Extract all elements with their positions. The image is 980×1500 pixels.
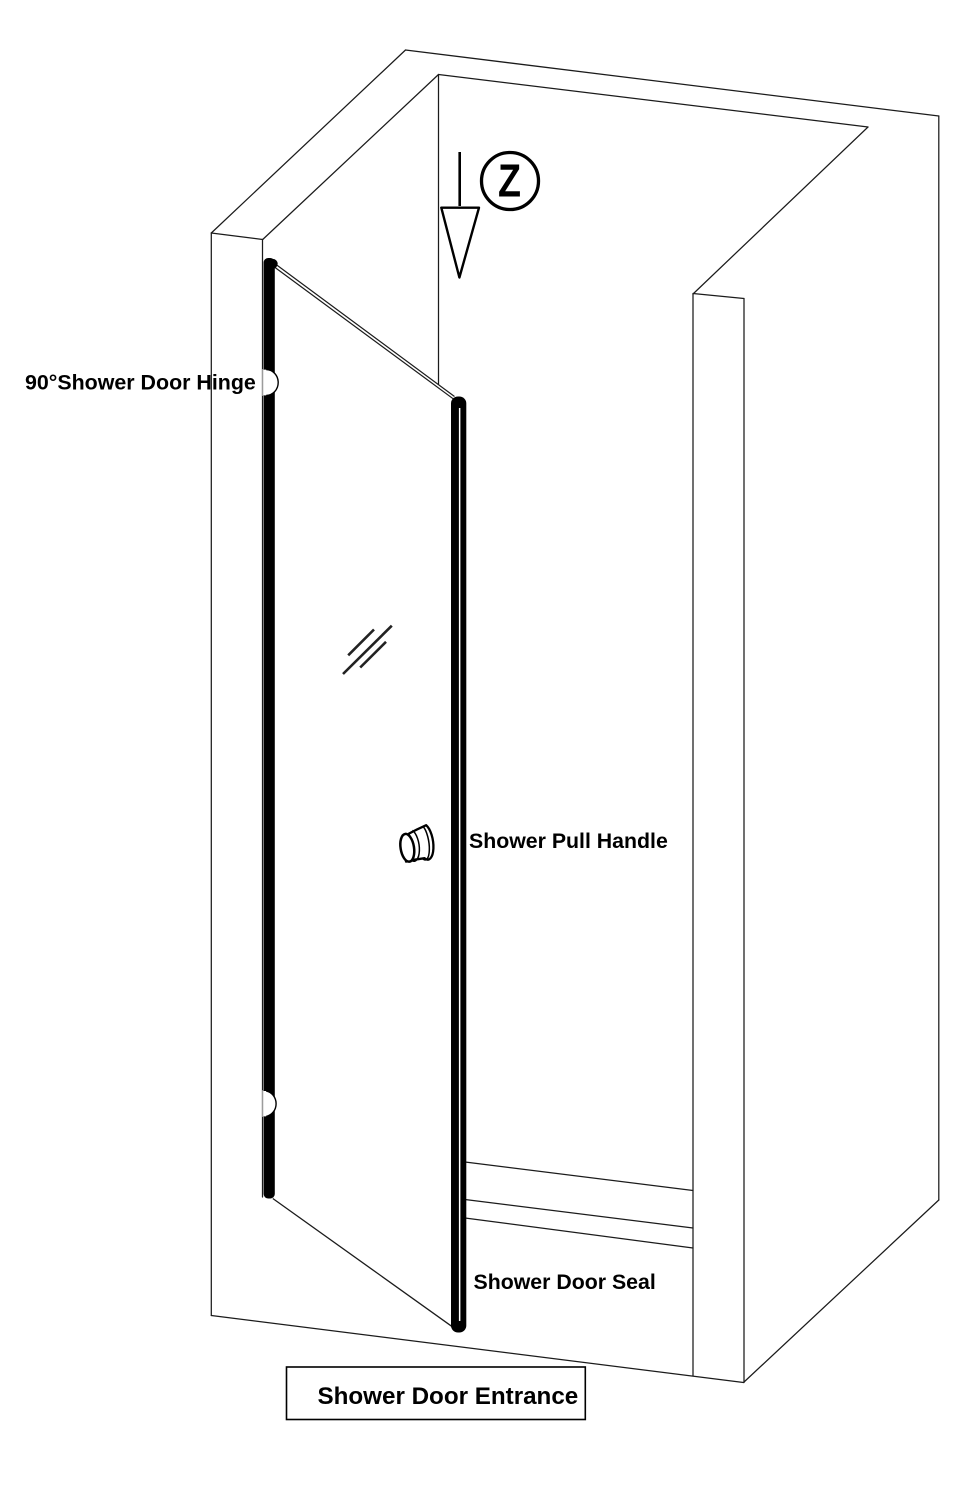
svg-text:90°Shower Door Hinge: 90°Shower Door Hinge [25,371,256,395]
svg-text:Shower Door Seal: Shower Door Seal [474,1270,656,1294]
svg-text:Shower Pull Handle: Shower Pull Handle [469,829,668,853]
svg-text:Shower Door Entrance: Shower Door Entrance [318,1383,579,1410]
svg-text:Z: Z [498,155,521,207]
